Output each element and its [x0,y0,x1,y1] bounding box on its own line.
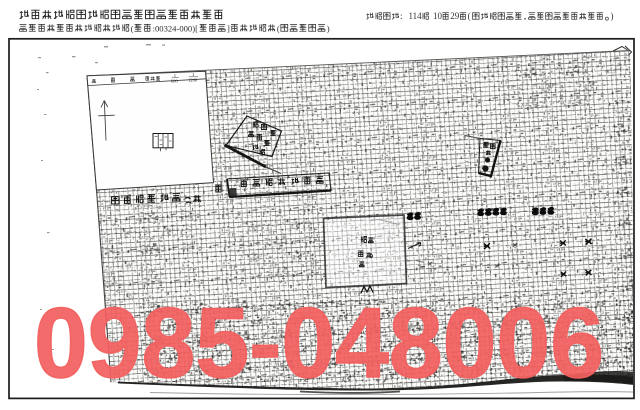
svg-text:1200: 1200 [188,77,198,82]
svg-text:(: ( [468,11,471,21]
svg-text:29: 29 [450,11,460,21]
svg-text:]: ] [227,23,230,33]
svg-text:600: 600 [171,78,179,83]
svg-text:10: 10 [433,11,443,21]
svg-text::: : [400,11,403,21]
svg-text:): ) [611,11,614,21]
svg-text:(: ( [131,23,134,33]
svg-text:(: ( [277,23,280,33]
svg-text:0985-048006: 0985-048006 [34,287,604,398]
svg-text::00324-000)[: :00324-000)[ [153,23,198,33]
svg-text:114: 114 [409,11,423,21]
svg-text:): ) [327,23,330,33]
